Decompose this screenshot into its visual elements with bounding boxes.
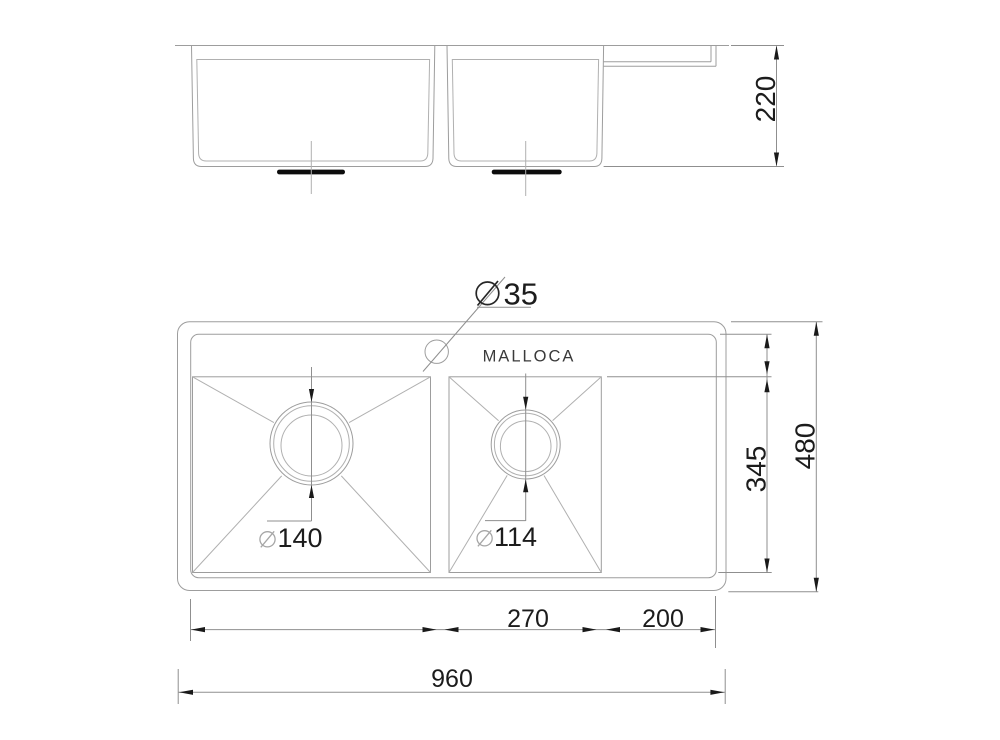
- side-view: 220: [175, 46, 784, 197]
- arrowhead-down: [523, 397, 528, 410]
- dim-label-bowl-front-back: 345: [741, 446, 772, 493]
- arrowhead-down: [764, 361, 769, 374]
- sink-drawing-svg: 220 35 MA: [0, 0, 1000, 740]
- technical-drawing-canvas: 220 35 MA: [0, 0, 1000, 740]
- dim-label-faucet-hole: 35: [504, 277, 538, 312]
- arrowhead-left: [179, 690, 193, 695]
- dim-label-right-bowl-width: 270: [507, 605, 549, 633]
- left-bowl-profile-outer: [192, 46, 435, 167]
- arrowhead-up: [764, 379, 769, 392]
- dim-chain-bottom: 270 200: [191, 596, 716, 648]
- arrowhead-right: [710, 690, 724, 695]
- arrowhead-up: [764, 334, 769, 348]
- arrowhead-up: [814, 322, 819, 336]
- faucet-hole: [425, 340, 448, 363]
- arrowhead-right: [701, 627, 715, 632]
- sink-inner-rim: [191, 334, 717, 577]
- arrowhead-left: [606, 627, 620, 632]
- dim-label-depth: 220: [750, 76, 781, 123]
- dim-depth-220: 220: [604, 46, 784, 167]
- dim-label-right-drain: 114: [494, 522, 537, 552]
- dim-960: 960: [178, 665, 725, 704]
- sink-outer-rim: [178, 322, 727, 591]
- arrowhead-up: [523, 479, 528, 492]
- plan-view: 35 MALLOCA 140 114: [178, 277, 823, 705]
- dim-label-drainboard-width: 200: [642, 605, 684, 633]
- arrowhead-left: [191, 627, 205, 632]
- drainboard-step-profile: [604, 46, 716, 67]
- left-drain-callout: 140: [260, 367, 323, 553]
- arrowhead-down: [774, 153, 779, 167]
- brand-label: MALLOCA: [483, 348, 576, 366]
- arrowhead-down: [814, 578, 819, 592]
- dim-label-left-drain: 140: [278, 523, 323, 553]
- arrowhead-up: [774, 46, 779, 60]
- arrowhead-up: [309, 485, 314, 498]
- left-bowl-profile-inner: [197, 60, 430, 162]
- dim-label-overall-width: 960: [431, 665, 473, 693]
- drain-centerlines: [311, 141, 525, 196]
- dim-345: 345: [607, 334, 772, 572]
- arrowhead-down: [309, 389, 314, 402]
- arrowhead-right: [583, 627, 597, 632]
- arrowhead-right: [423, 627, 437, 632]
- right-drain-mark: [492, 170, 562, 175]
- dim-label-overall-depth: 480: [790, 423, 821, 470]
- arrowhead-left: [445, 627, 459, 632]
- arrowhead-down: [764, 559, 769, 573]
